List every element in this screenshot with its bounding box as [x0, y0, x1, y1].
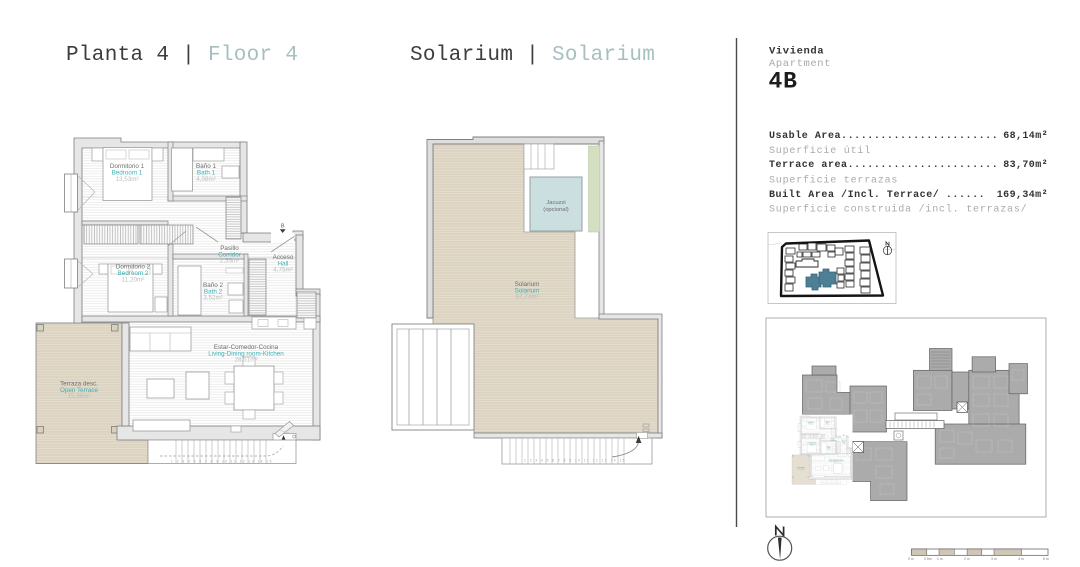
svg-text:4,08m²: 4,08m²: [196, 176, 216, 183]
svg-text:(opcional): (opcional): [543, 207, 569, 213]
svg-text:28,51m²: 28,51m²: [234, 357, 257, 364]
svg-text:6 m: 6 m: [1043, 557, 1049, 561]
svg-text:1 m: 1 m: [937, 557, 943, 561]
svg-text:2 m: 2 m: [964, 557, 970, 561]
svg-text:1 2 3 4 5 6 7 8 9 10 11 12 13: 1 2 3 4 5 6 7 8 9 10 11 12 13 14 15: [524, 459, 626, 463]
svg-text:67,74m²: 67,74m²: [515, 294, 538, 301]
svg-text:3 m: 3 m: [991, 557, 997, 561]
svg-text:Built Area /Incl. Terrace/ ...: Built Area /Incl. Terrace/ ......: [769, 189, 985, 201]
svg-text:Planta 4 | Floor 4: Planta 4 | Floor 4: [66, 44, 298, 67]
svg-text:B: B: [281, 224, 285, 230]
svg-text:Superficie construida /incl. t: Superficie construida /incl. terrazas/: [769, 204, 1027, 216]
svg-text:Vivienda: Vivienda: [769, 46, 824, 58]
svg-text:0 m: 0 m: [908, 557, 914, 561]
svg-text:4B: 4B: [769, 69, 798, 95]
svg-text:169,34m²: 169,34m²: [997, 190, 1048, 201]
svg-text:3,52m²: 3,52m²: [203, 295, 223, 302]
svg-text:4 m: 4 m: [1018, 557, 1024, 561]
svg-text:2,55m²: 2,55m²: [220, 258, 240, 265]
svg-text:83,70m²: 83,70m²: [1003, 160, 1048, 171]
svg-text:Superficie útil: Superficie útil: [769, 145, 871, 157]
svg-text:Jacuzzi: Jacuzzi: [546, 200, 565, 206]
svg-text:Terrace area..................: Terrace area.......................: [769, 160, 998, 171]
svg-text:1 2 3 4 5 6 7 8 9 10 11 12 13: 1 2 3 4 5 6 7 8 9 10 11 12 13 14 15: [171, 460, 273, 464]
svg-text:Usable Area...................: Usable Area........................: [769, 130, 998, 142]
svg-text:Solarium | Solarium: Solarium | Solarium: [410, 44, 655, 67]
svg-text:15,96m²: 15,96m²: [67, 393, 90, 400]
svg-text:13,53m²: 13,53m²: [115, 176, 138, 183]
svg-text:11,20m²: 11,20m²: [122, 277, 145, 284]
svg-text:0,5m: 0,5m: [924, 557, 932, 561]
svg-text:4,75m²: 4,75m²: [273, 267, 293, 274]
svg-text:Superficie terrazas: Superficie terrazas: [769, 175, 898, 187]
svg-text:68,14m²: 68,14m²: [1003, 131, 1048, 142]
